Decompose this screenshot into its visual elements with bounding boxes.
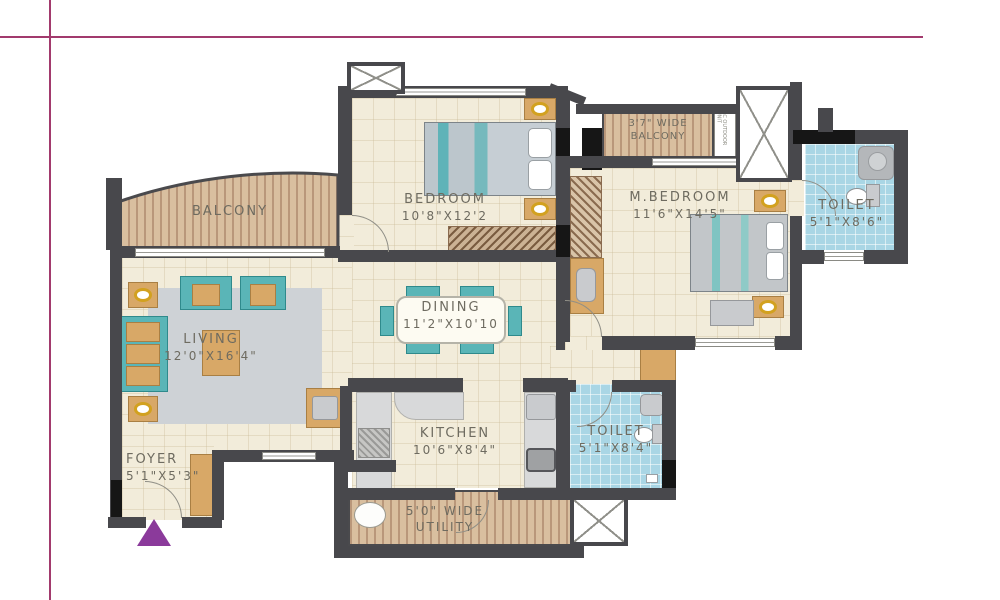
wall: [576, 104, 738, 114]
soap-holder: [646, 474, 658, 483]
lamp-icon: [531, 102, 549, 116]
room-name: TOILET: [570, 424, 662, 441]
door-gap-patch: [565, 336, 602, 350]
balcony-sliding-window: [135, 248, 325, 257]
pillow: [766, 252, 784, 280]
master-bedroom-label: M.BEDROOM 11'6"X14'5": [598, 190, 762, 222]
wall: [106, 178, 122, 250]
bedroom-label: BEDROOM 10'8"X12'2: [378, 192, 512, 224]
foyer-label: FOYER 5'1"X5'3": [126, 452, 226, 484]
living-label: LIVING 12'0"X16'4": [148, 332, 274, 364]
room-dims: 11'2"X10'10: [386, 317, 516, 333]
wall: [334, 546, 584, 558]
kitchen-counter: [394, 392, 464, 420]
wall: [340, 460, 396, 472]
nightstand-lamp: [752, 296, 784, 318]
balcony-label: BALCONY: [160, 204, 300, 221]
fridge: [526, 394, 556, 420]
lamp-icon: [531, 202, 549, 216]
dresser-chair: [576, 268, 596, 302]
dining-label: DINING 11'2"X10'10: [386, 300, 516, 332]
window: [695, 338, 775, 347]
pillow: [766, 222, 784, 250]
nightstand-lamp: [524, 98, 556, 120]
label-line: BALCONY: [602, 130, 714, 143]
entry-arrow-icon: [137, 519, 171, 546]
side-table-lamp: [128, 396, 158, 422]
window: [396, 88, 526, 96]
armchair-cushion: [192, 284, 220, 306]
wall: [894, 130, 908, 264]
accent-line-horizontal: [0, 36, 923, 38]
room-name: DINING: [386, 300, 516, 317]
room-name: M.BEDROOM: [598, 190, 762, 207]
wall: [790, 216, 802, 350]
wall: [348, 378, 463, 392]
wall: [818, 108, 833, 132]
wall: [110, 246, 122, 452]
label-line: UTILITY: [380, 520, 510, 536]
utility-label: 5'0" WIDE UTILITY: [380, 504, 510, 535]
side-table-lamp: [128, 282, 158, 308]
room-name: TOILET: [802, 198, 892, 215]
nightstand-lamp: [524, 198, 556, 220]
room-name: BALCONY: [160, 204, 300, 221]
wall: [602, 336, 695, 350]
wall: [334, 460, 348, 558]
lamp-icon: [761, 194, 779, 208]
floor-plan: AC OUTDOOR UNIT: [0, 0, 1000, 600]
room-dims: 10'6"X8'4": [392, 443, 518, 459]
kitchen-sink: [526, 448, 556, 472]
ac-niche: [556, 225, 570, 257]
wall: [556, 380, 570, 500]
wall: [340, 488, 455, 500]
ac-unit-vertical-note: AC OUTDOOR UNIT: [715, 111, 726, 157]
kitchen-label: KITCHEN 10'6"X8'4": [392, 426, 518, 458]
shaft: [570, 496, 628, 546]
wall: [338, 92, 352, 215]
window: [262, 452, 316, 460]
sofa-cushion: [126, 366, 160, 386]
tv: [312, 396, 338, 420]
ac-unit-strip: AC OUTDOOR UNIT: [714, 110, 736, 158]
wall: [793, 130, 855, 144]
common-toilet-label: TOILET 5'1"X8'4": [570, 424, 662, 456]
wall: [556, 336, 565, 350]
room-dims: 5'1"X5'3": [126, 469, 226, 485]
shower-drain-icon: [868, 152, 887, 171]
shaft: [736, 86, 792, 182]
accent-line-vertical: [49, 0, 51, 600]
lamp-icon: [134, 402, 152, 416]
room-dims: 10'8"X12'2: [378, 209, 512, 225]
room-dims: 5'1"X8'4": [570, 441, 662, 457]
wall: [612, 380, 676, 392]
room-dims: 12'0"X16'4": [148, 349, 274, 365]
window: [824, 252, 864, 261]
room-name: KITCHEN: [392, 426, 518, 443]
wall: [793, 250, 824, 264]
room-dims: 5'1"X8'6": [802, 215, 892, 231]
pillow: [528, 128, 552, 158]
wash-basin: [640, 394, 664, 416]
armchair-cushion: [250, 284, 276, 306]
label-line: 3'7" WIDE: [602, 117, 714, 130]
lamp-icon: [759, 300, 777, 314]
pillow: [528, 160, 552, 190]
stove: [358, 428, 390, 458]
master-balcony-label: 3'7" WIDE BALCONY: [602, 117, 714, 143]
master-toilet-label: TOILET 5'1"X8'6": [802, 198, 892, 230]
bench: [710, 300, 754, 326]
room-dims: 11'6"X14'5": [598, 207, 762, 223]
shaft: [347, 62, 405, 94]
room-name: FOYER: [126, 452, 226, 469]
lamp-icon: [134, 288, 152, 302]
label-line: 5'0" WIDE: [380, 504, 510, 520]
room-name: BEDROOM: [378, 192, 512, 209]
room-name: LIVING: [148, 332, 274, 349]
bedroom-rug: [448, 226, 556, 252]
wall: [864, 250, 908, 264]
